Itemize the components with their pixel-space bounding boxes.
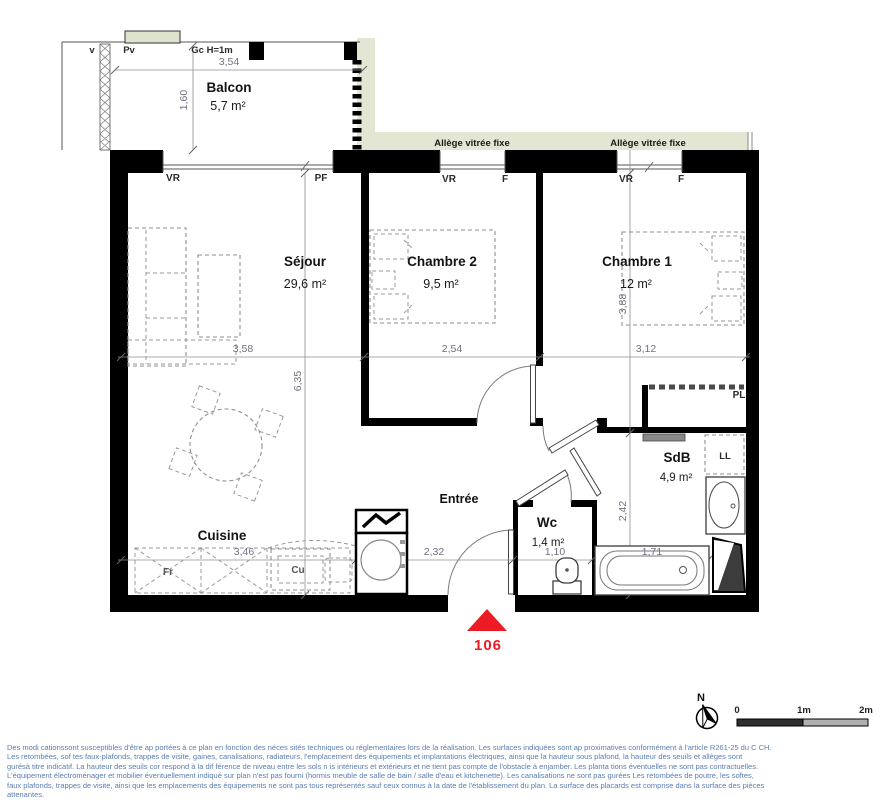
room-label-chambre1: Chambre 1 bbox=[602, 254, 672, 269]
towel-rail bbox=[643, 434, 685, 441]
dimension-lines bbox=[111, 42, 750, 599]
dim-sejour-w: 3,58 bbox=[233, 343, 254, 355]
dim-cuisine-w: 3,46 bbox=[234, 546, 255, 558]
label-cu: Cu bbox=[291, 565, 304, 576]
label-ll: LL bbox=[719, 451, 731, 462]
scale-one: 1m bbox=[797, 705, 811, 716]
label-allege-1: Allège vitrée fixe bbox=[434, 138, 510, 149]
wc-fixtures bbox=[553, 558, 581, 594]
disclaimer-line: L'équipement électroménager et mobilier … bbox=[7, 771, 878, 780]
room-area-sdb: 4,9 m² bbox=[660, 472, 693, 484]
label-fr: Fr bbox=[163, 567, 173, 578]
door-chambre1 bbox=[543, 420, 599, 453]
disclaimer: Des modi cationssont susceptibles d'être… bbox=[7, 743, 878, 800]
door-sdb bbox=[570, 448, 601, 496]
unit-number: 106 bbox=[474, 637, 502, 654]
planter-box bbox=[125, 31, 180, 43]
label-gc: Gc H=1m bbox=[191, 45, 232, 56]
dining-table bbox=[169, 386, 283, 501]
pillow bbox=[712, 296, 741, 321]
furniture-sejour bbox=[128, 228, 283, 501]
door-wc bbox=[516, 470, 571, 506]
washbasin bbox=[706, 477, 745, 534]
dim-chambre1-h: 3,88 bbox=[617, 294, 629, 315]
pillow bbox=[374, 294, 408, 319]
dim-balcony-w: 3,54 bbox=[219, 56, 240, 68]
scale-two: 2m bbox=[859, 705, 873, 716]
disclaimer-line: Les retombées, sof tes faux-plafonds, tr… bbox=[7, 752, 878, 761]
sink bbox=[325, 558, 352, 582]
north-label: N bbox=[697, 692, 705, 704]
disclaimer-line: faux plafonds, trappes de visite, ainsi … bbox=[7, 781, 878, 790]
room-area-sejour: 29,6 m² bbox=[284, 277, 326, 291]
dim-wc-w: 1,10 bbox=[545, 546, 566, 558]
room-label-entree: Entrée bbox=[440, 492, 479, 506]
scale-zero: 0 bbox=[734, 705, 739, 716]
label-vr-ch1: VR bbox=[619, 174, 634, 185]
room-area-balcon: 5,7 m² bbox=[210, 99, 245, 113]
doors bbox=[448, 365, 601, 595]
label-pv: Pv bbox=[123, 45, 135, 56]
dim-sejour-h: 6,35 bbox=[292, 371, 304, 392]
dim-balcony-d: 1,60 bbox=[178, 90, 190, 111]
electrical-cabinet bbox=[356, 510, 407, 533]
floor-plan-page: Balcon 5,7 m² Séjour 29,6 m² Chambre 2 9… bbox=[0, 0, 883, 800]
room-label-wc: Wc bbox=[537, 515, 558, 530]
entrance-arrow-icon bbox=[467, 609, 507, 631]
pillow bbox=[712, 236, 741, 261]
label-allege-2: Allège vitrée fixe bbox=[610, 138, 686, 149]
room-label-sejour: Séjour bbox=[284, 254, 327, 269]
floor-plan-drawing: Balcon 5,7 m² Séjour 29,6 m² Chambre 2 9… bbox=[0, 0, 883, 740]
water-heater bbox=[356, 533, 407, 594]
label-vr-balcony: VR bbox=[166, 173, 181, 184]
scale-bar: 0 1m 2m bbox=[734, 705, 873, 726]
room-label-balcon: Balcon bbox=[206, 80, 251, 95]
furniture-cuisine bbox=[135, 510, 407, 594]
label-pl: PL bbox=[733, 390, 746, 401]
disclaimer-line: gurésà titre indicatif. La hauteur des s… bbox=[7, 762, 878, 771]
nightstand bbox=[718, 272, 742, 289]
room-label-cuisine: Cuisine bbox=[198, 528, 247, 543]
balcony-divider bbox=[100, 44, 110, 150]
room-label-chambre2: Chambre 2 bbox=[407, 254, 477, 269]
dim-entree-w: 2,32 bbox=[424, 546, 445, 558]
disclaimer-line: Des modi cationssont susceptibles d'être… bbox=[7, 743, 878, 752]
label-pv-partial: v bbox=[89, 45, 95, 56]
dim-sdb-h: 2,42 bbox=[617, 501, 629, 522]
door-chambre2 bbox=[477, 365, 536, 423]
coffee-table bbox=[198, 255, 240, 337]
annotation-labels: v Pv Gc H=1m VR PF Allège vitrée fixe Al… bbox=[89, 45, 745, 578]
dim-bath-w: 1,71 bbox=[642, 546, 663, 558]
door-entrance bbox=[448, 530, 514, 595]
room-label-sdb: SdB bbox=[664, 450, 691, 465]
dim-chambre2-w: 2,54 bbox=[442, 343, 463, 355]
room-area-chambre2: 9,5 m² bbox=[423, 277, 458, 291]
duct-shaft bbox=[713, 538, 745, 592]
exterior-band bbox=[357, 38, 752, 150]
label-vr-ch2: VR bbox=[442, 174, 457, 185]
label-f-ch2: F bbox=[502, 174, 508, 185]
north-arrow-icon: N bbox=[693, 692, 721, 731]
label-f-ch1: F bbox=[678, 174, 684, 185]
nightstand bbox=[372, 271, 395, 289]
label-pf-balcony: PF bbox=[315, 173, 328, 184]
sofa bbox=[128, 228, 236, 366]
disclaimer-line: attenantes. bbox=[7, 790, 878, 799]
pillow bbox=[374, 234, 408, 259]
room-area-chambre1: 12 m² bbox=[620, 277, 652, 291]
unit-marker: 106 bbox=[467, 609, 507, 654]
dim-chambre1-w: 3,12 bbox=[636, 343, 657, 355]
